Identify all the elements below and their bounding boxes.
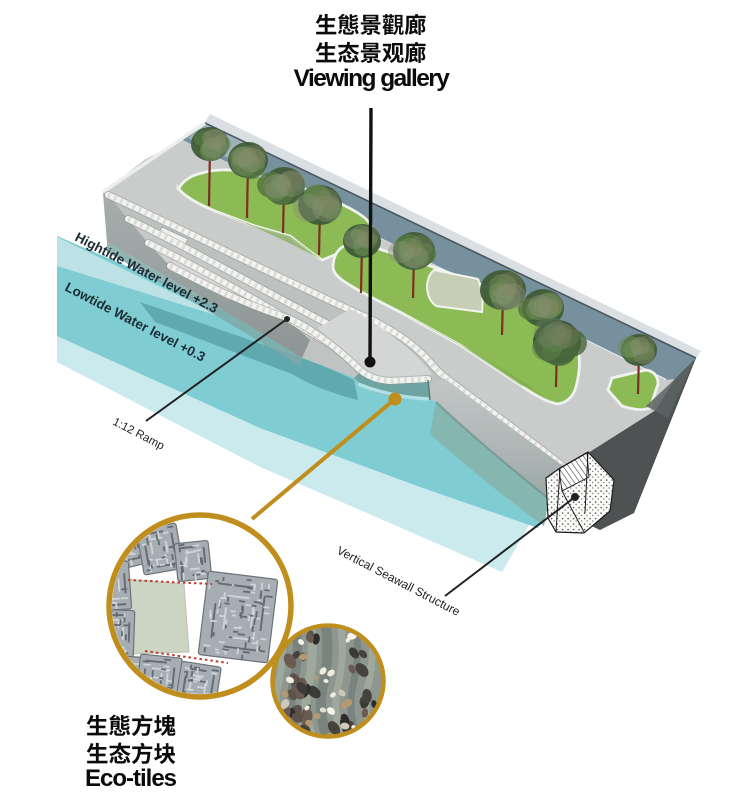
svg-text:Viewing gallery: Viewing gallery: [294, 65, 451, 92]
svg-text:1:12 Ramp: 1:12 Ramp: [111, 416, 166, 453]
svg-text:Vertical Seawall Structure: Vertical Seawall Structure: [335, 543, 463, 619]
svg-text:Eco-tiles: Eco-tiles: [85, 765, 177, 792]
